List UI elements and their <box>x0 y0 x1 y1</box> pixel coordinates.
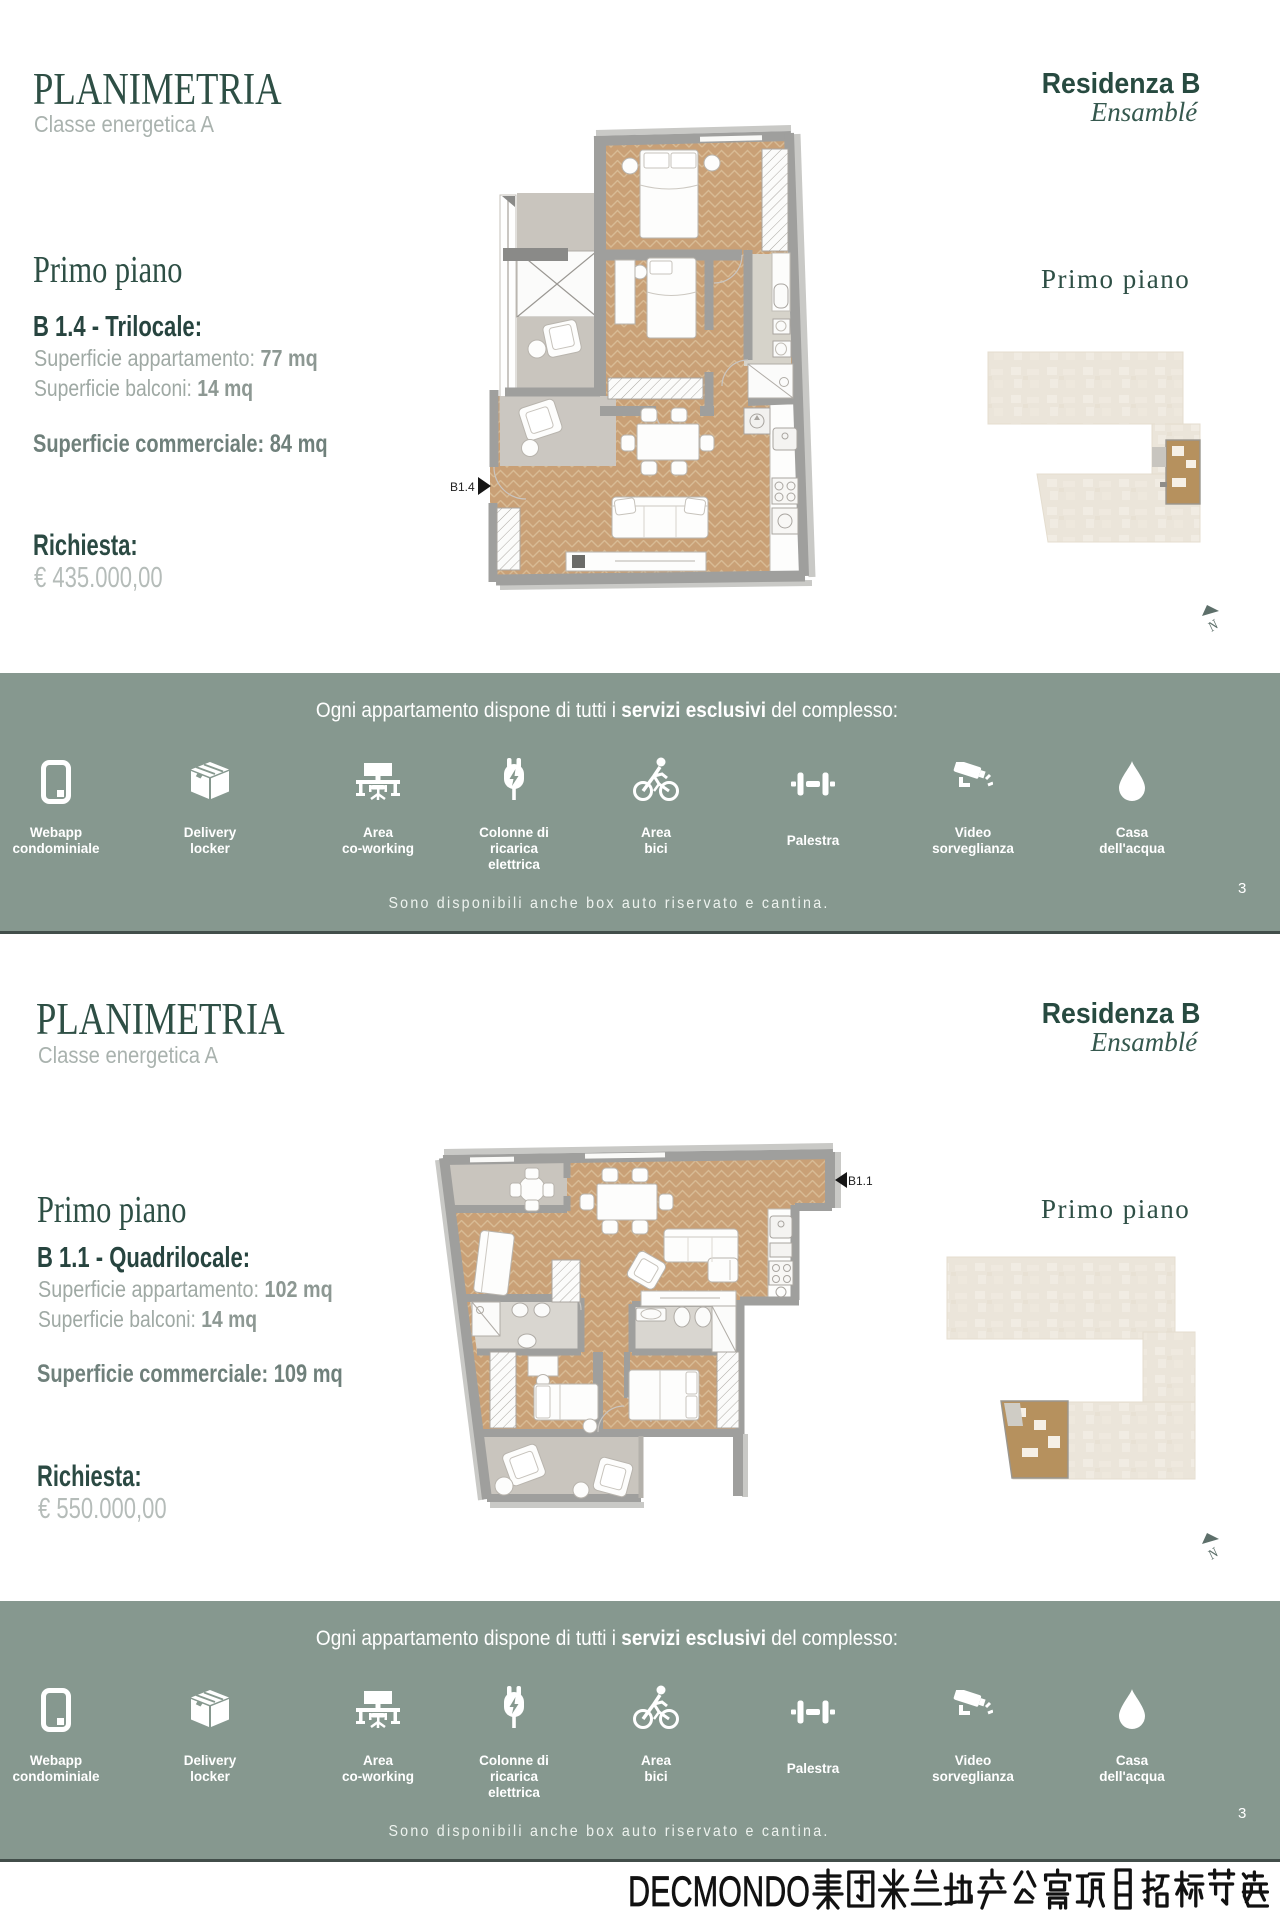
svg-text:B1.1: B1.1 <box>848 1174 873 1188</box>
svg-text:N: N <box>1205 1545 1223 1564</box>
svg-text:B1.4: B1.4 <box>450 480 475 494</box>
svg-text:DECMONDO: DECMONDO <box>628 1868 810 1916</box>
svg-text:N: N <box>1205 617 1223 636</box>
